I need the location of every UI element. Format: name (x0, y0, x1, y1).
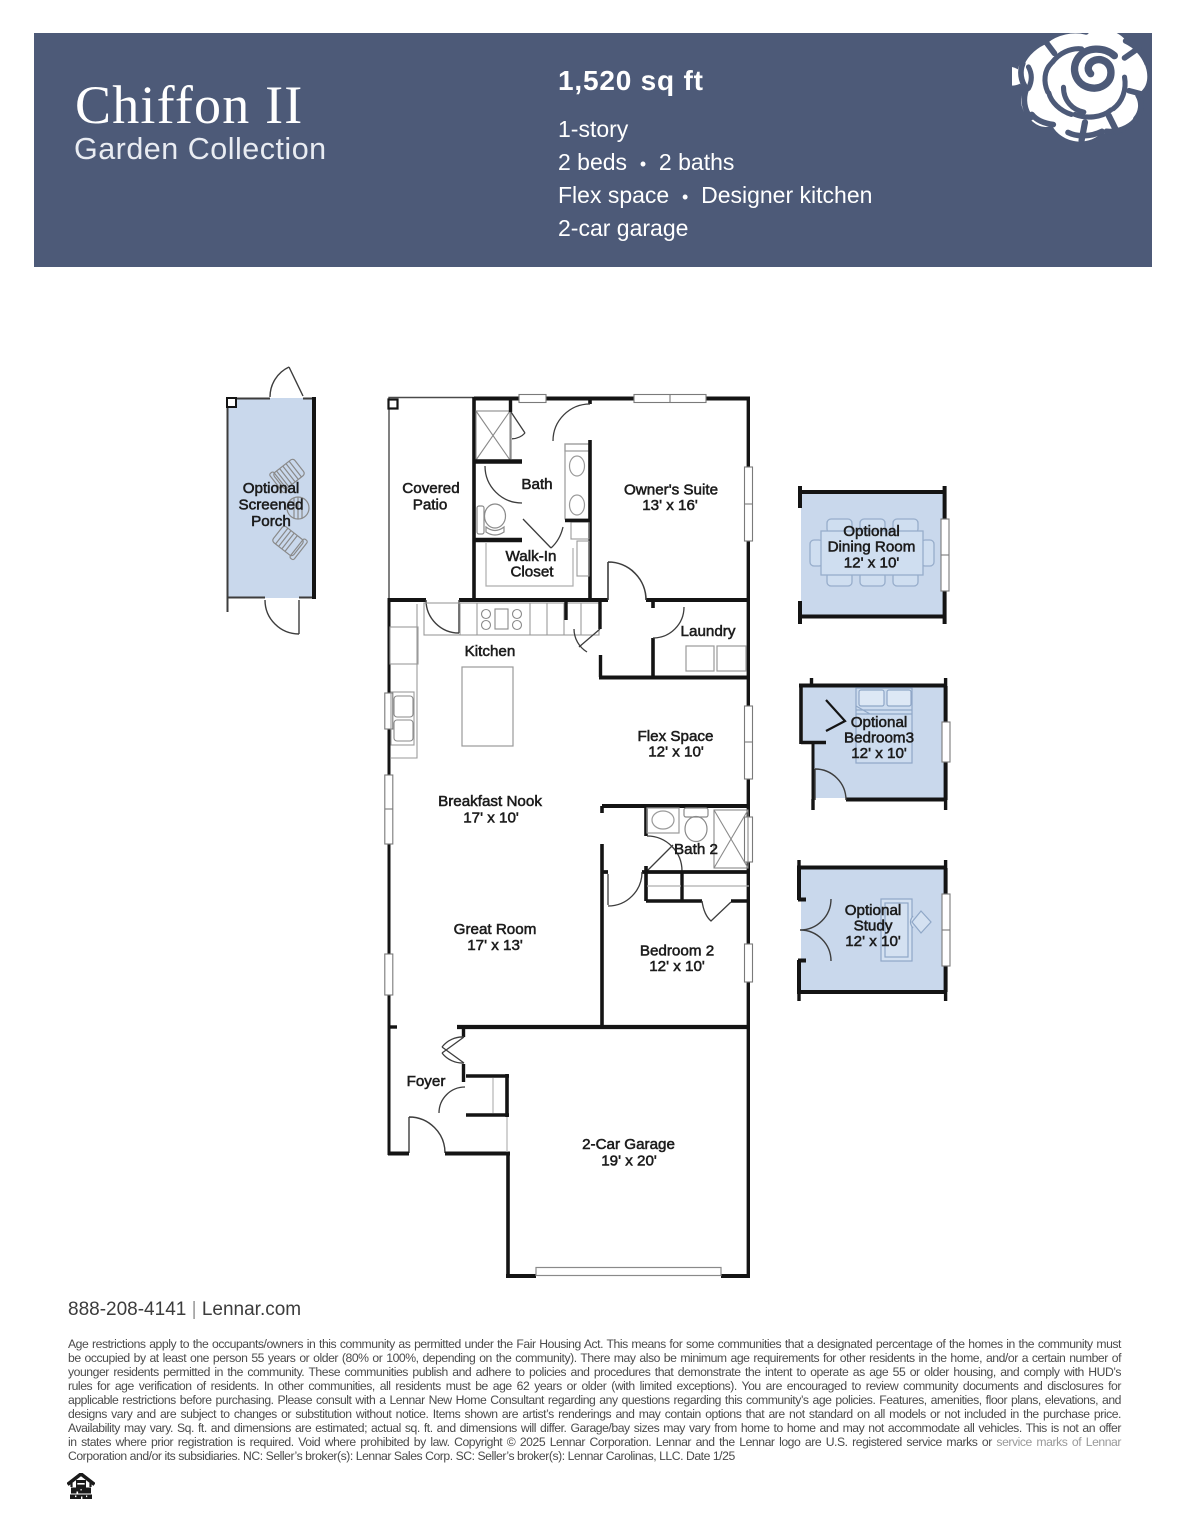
svg-text:Laundry: Laundry (681, 623, 736, 640)
svg-text:Screened: Screened (238, 497, 303, 514)
svg-text:Optional: Optional (851, 714, 908, 731)
svg-text:Dining Room: Dining Room (828, 539, 916, 556)
svg-text:Bath: Bath (521, 476, 552, 493)
svg-text:12' x 10': 12' x 10' (851, 745, 907, 762)
svg-text:12' x 10': 12' x 10' (844, 555, 900, 572)
svg-text:Bedroom3: Bedroom3 (844, 730, 914, 747)
svg-text:Walk-In: Walk-In (506, 548, 557, 565)
svg-text:13' x 16': 13' x 16' (642, 497, 698, 514)
svg-text:2-Car Garage: 2-Car Garage (582, 1136, 675, 1153)
svg-text:Porch: Porch (251, 513, 291, 530)
svg-text:Owner's Suite: Owner's Suite (624, 482, 718, 499)
svg-text:19' x 20': 19' x 20' (601, 1153, 657, 1170)
svg-text:Covered: Covered (402, 480, 459, 497)
svg-text:Bath 2: Bath 2 (674, 841, 718, 858)
svg-text:Closet: Closet (510, 564, 554, 581)
svg-text:Bedroom 2: Bedroom 2 (640, 943, 714, 960)
svg-text:Breakfast Nook: Breakfast Nook (438, 793, 542, 810)
svg-text:Optional: Optional (845, 902, 902, 919)
svg-text:Study: Study (854, 918, 893, 935)
svg-text:Foyer: Foyer (407, 1073, 446, 1090)
svg-text:17' x 13': 17' x 13' (467, 937, 523, 954)
svg-text:Optional: Optional (843, 523, 900, 540)
svg-text:Patio: Patio (413, 497, 448, 514)
svg-text:12' x 10': 12' x 10' (649, 958, 705, 975)
svg-text:Optional: Optional (243, 480, 300, 497)
svg-text:12' x 10': 12' x 10' (845, 933, 901, 950)
svg-text:17' x 10': 17' x 10' (463, 810, 519, 827)
svg-text:12' x 10': 12' x 10' (648, 744, 704, 761)
svg-text:Great Room: Great Room (454, 921, 537, 938)
svg-text:Flex Space: Flex Space (638, 728, 714, 745)
svg-text:Kitchen: Kitchen (465, 643, 516, 660)
